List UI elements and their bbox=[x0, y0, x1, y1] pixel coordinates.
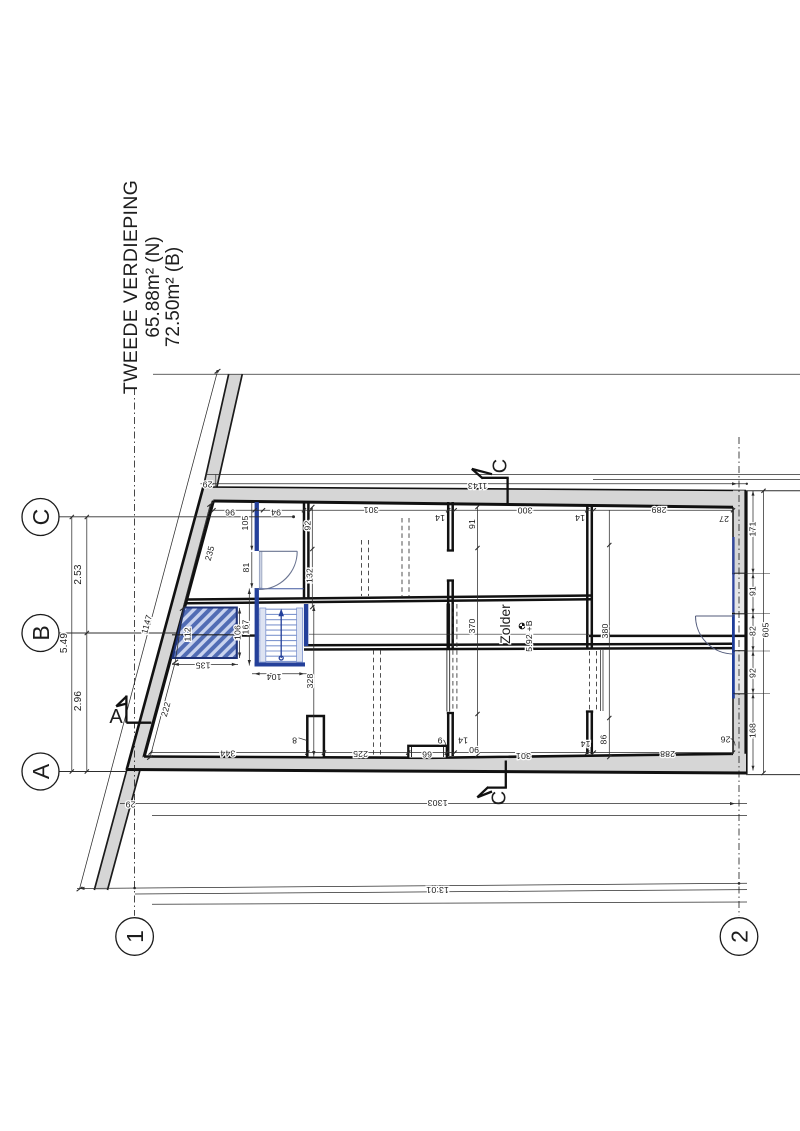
svg-text:171: 171 bbox=[748, 521, 758, 536]
svg-text:132: 132 bbox=[305, 568, 315, 583]
svg-text:301: 301 bbox=[363, 505, 378, 515]
svg-text:65.88m² (N): 65.88m² (N) bbox=[143, 236, 164, 337]
svg-text:91: 91 bbox=[748, 586, 758, 596]
svg-text:C: C bbox=[489, 791, 511, 805]
svg-text:168: 168 bbox=[748, 723, 758, 738]
svg-text:A: A bbox=[28, 763, 54, 779]
svg-text:8: 8 bbox=[292, 736, 297, 746]
svg-text:328: 328 bbox=[305, 673, 315, 688]
svg-text:86: 86 bbox=[599, 734, 609, 744]
svg-text:14: 14 bbox=[435, 513, 445, 523]
svg-text:A: A bbox=[109, 706, 123, 728]
svg-text:2: 2 bbox=[726, 930, 752, 943]
svg-text:1303: 1303 bbox=[427, 798, 447, 808]
svg-text:92: 92 bbox=[748, 668, 758, 678]
svg-text:Zolder: Zolder bbox=[497, 604, 513, 644]
svg-text:105: 105 bbox=[240, 515, 250, 530]
svg-text:300: 300 bbox=[517, 506, 532, 516]
svg-text:370: 370 bbox=[467, 618, 477, 633]
svg-text:81: 81 bbox=[241, 562, 251, 572]
svg-text:288: 288 bbox=[660, 749, 675, 759]
svg-text:92: 92 bbox=[303, 520, 313, 530]
svg-text:14: 14 bbox=[458, 736, 468, 746]
svg-text:1143: 1143 bbox=[468, 481, 487, 491]
svg-text:29: 29 bbox=[202, 479, 212, 489]
svg-text:94: 94 bbox=[271, 508, 281, 518]
svg-text:66: 66 bbox=[422, 750, 432, 760]
svg-text:72.50m² (B): 72.50m² (B) bbox=[163, 247, 184, 347]
svg-text:135: 135 bbox=[195, 661, 210, 671]
svg-text:9: 9 bbox=[437, 736, 442, 746]
svg-text:5.49: 5.49 bbox=[59, 633, 70, 654]
svg-text:2.96: 2.96 bbox=[73, 691, 84, 712]
svg-text:C: C bbox=[28, 509, 54, 526]
svg-text:289: 289 bbox=[651, 505, 666, 515]
svg-text:605: 605 bbox=[761, 622, 771, 637]
svg-text:82: 82 bbox=[748, 626, 758, 636]
svg-text:1: 1 bbox=[122, 930, 148, 943]
svg-text:29: 29 bbox=[125, 800, 135, 810]
svg-text:B: B bbox=[28, 625, 54, 640]
svg-text:380: 380 bbox=[600, 623, 610, 638]
svg-text:26: 26 bbox=[720, 735, 730, 745]
svg-text:C: C bbox=[490, 459, 512, 473]
svg-text:TWEEDE VERDIEPING: TWEEDE VERDIEPING bbox=[120, 180, 142, 394]
svg-text:112: 112 bbox=[183, 627, 193, 641]
svg-text:27: 27 bbox=[719, 514, 729, 524]
svg-text:14: 14 bbox=[575, 513, 585, 523]
svg-text:14: 14 bbox=[580, 739, 590, 749]
svg-text:344: 344 bbox=[220, 749, 235, 759]
svg-text:96: 96 bbox=[225, 508, 235, 518]
svg-text:104: 104 bbox=[266, 672, 281, 682]
svg-text:91: 91 bbox=[467, 519, 477, 529]
svg-text:106: 106 bbox=[233, 625, 243, 640]
svg-text:301: 301 bbox=[516, 751, 531, 761]
svg-text:225: 225 bbox=[353, 749, 368, 759]
svg-text:13.01: 13.01 bbox=[426, 885, 449, 895]
svg-text:90: 90 bbox=[469, 745, 479, 755]
svg-text:2.53: 2.53 bbox=[73, 564, 84, 585]
svg-text:5.92 +B: 5.92 +B bbox=[524, 620, 534, 652]
